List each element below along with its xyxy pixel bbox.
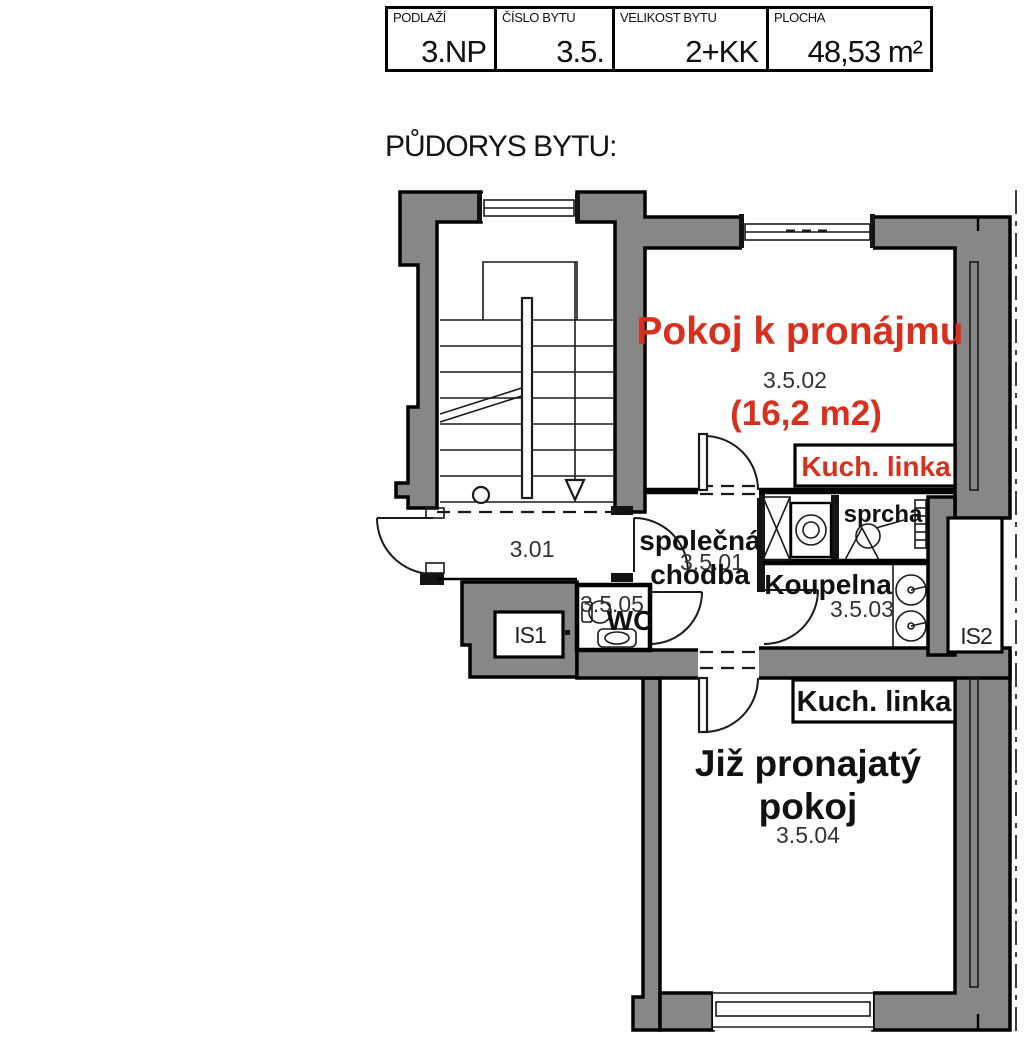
wc-name: WC xyxy=(607,605,654,636)
is2-label: IS2 xyxy=(960,623,992,649)
hall-door-jamb-bottom xyxy=(611,573,633,582)
stair-stringer xyxy=(522,298,532,498)
kitchen-label-rented: Kuch. linka xyxy=(797,686,953,718)
shower-name: sprcha xyxy=(844,501,923,528)
stair-post-icon xyxy=(473,487,489,503)
stairwell-window-icon xyxy=(477,194,580,222)
wc-door-swing xyxy=(650,592,702,644)
shaft-icon xyxy=(763,497,790,560)
hall-door-jamb-top xyxy=(611,506,633,515)
shared-hall-line2: chodba xyxy=(650,559,750,590)
basins xyxy=(893,565,928,648)
stair-down-arrow-icon xyxy=(566,480,584,500)
lower-room-left-wall xyxy=(633,678,660,1030)
corridor-number: 3.01 xyxy=(510,536,555,562)
rented-room-door-swing xyxy=(698,645,759,732)
room-rent-area: (16,2 m2) xyxy=(730,394,882,433)
room-rent-name: Pokoj k pronájmu xyxy=(636,310,963,353)
bathroom-number: 3.5.03 xyxy=(830,596,894,622)
rented-room-line1: Již pronajatý xyxy=(695,743,922,784)
washing-machine-icon xyxy=(791,503,831,557)
basin-icon-2 xyxy=(896,611,928,641)
rented-room-line2: pokoj xyxy=(759,786,858,827)
middle-band-left xyxy=(577,650,700,678)
kitchen-label-rent: Kuch. linka xyxy=(801,451,951,482)
rented-room-window-icon xyxy=(713,988,873,1030)
room-rent-door-swing xyxy=(698,434,759,498)
rented-room-number: 3.5.04 xyxy=(776,822,840,848)
stair-up-line-1 xyxy=(440,386,528,414)
room-rent-number: 3.5.02 xyxy=(763,367,827,393)
is1-label: IS1 xyxy=(514,622,546,648)
stairwell-left-wall xyxy=(396,192,481,508)
bottom-wall-left xyxy=(660,993,713,1030)
wall-dot xyxy=(565,630,570,635)
basin-icon-1 xyxy=(896,575,928,605)
staircase-icon xyxy=(437,262,613,512)
room-rent-window-icon xyxy=(739,214,875,250)
floor-plan-page: PODLAŽÍ 3.NP ČÍSLO BYTU 3.5. VELIKOST BY… xyxy=(0,0,1024,1037)
labels: Pokoj k pronájmu 3.5.02 (16,2 m2) Kuch. … xyxy=(510,310,992,848)
floor-plan-drawing: Pokoj k pronájmu 3.5.02 (16,2 m2) Kuch. … xyxy=(0,0,1024,1037)
washer-shower-partition xyxy=(831,495,839,562)
entrance-door-swing xyxy=(377,508,444,574)
